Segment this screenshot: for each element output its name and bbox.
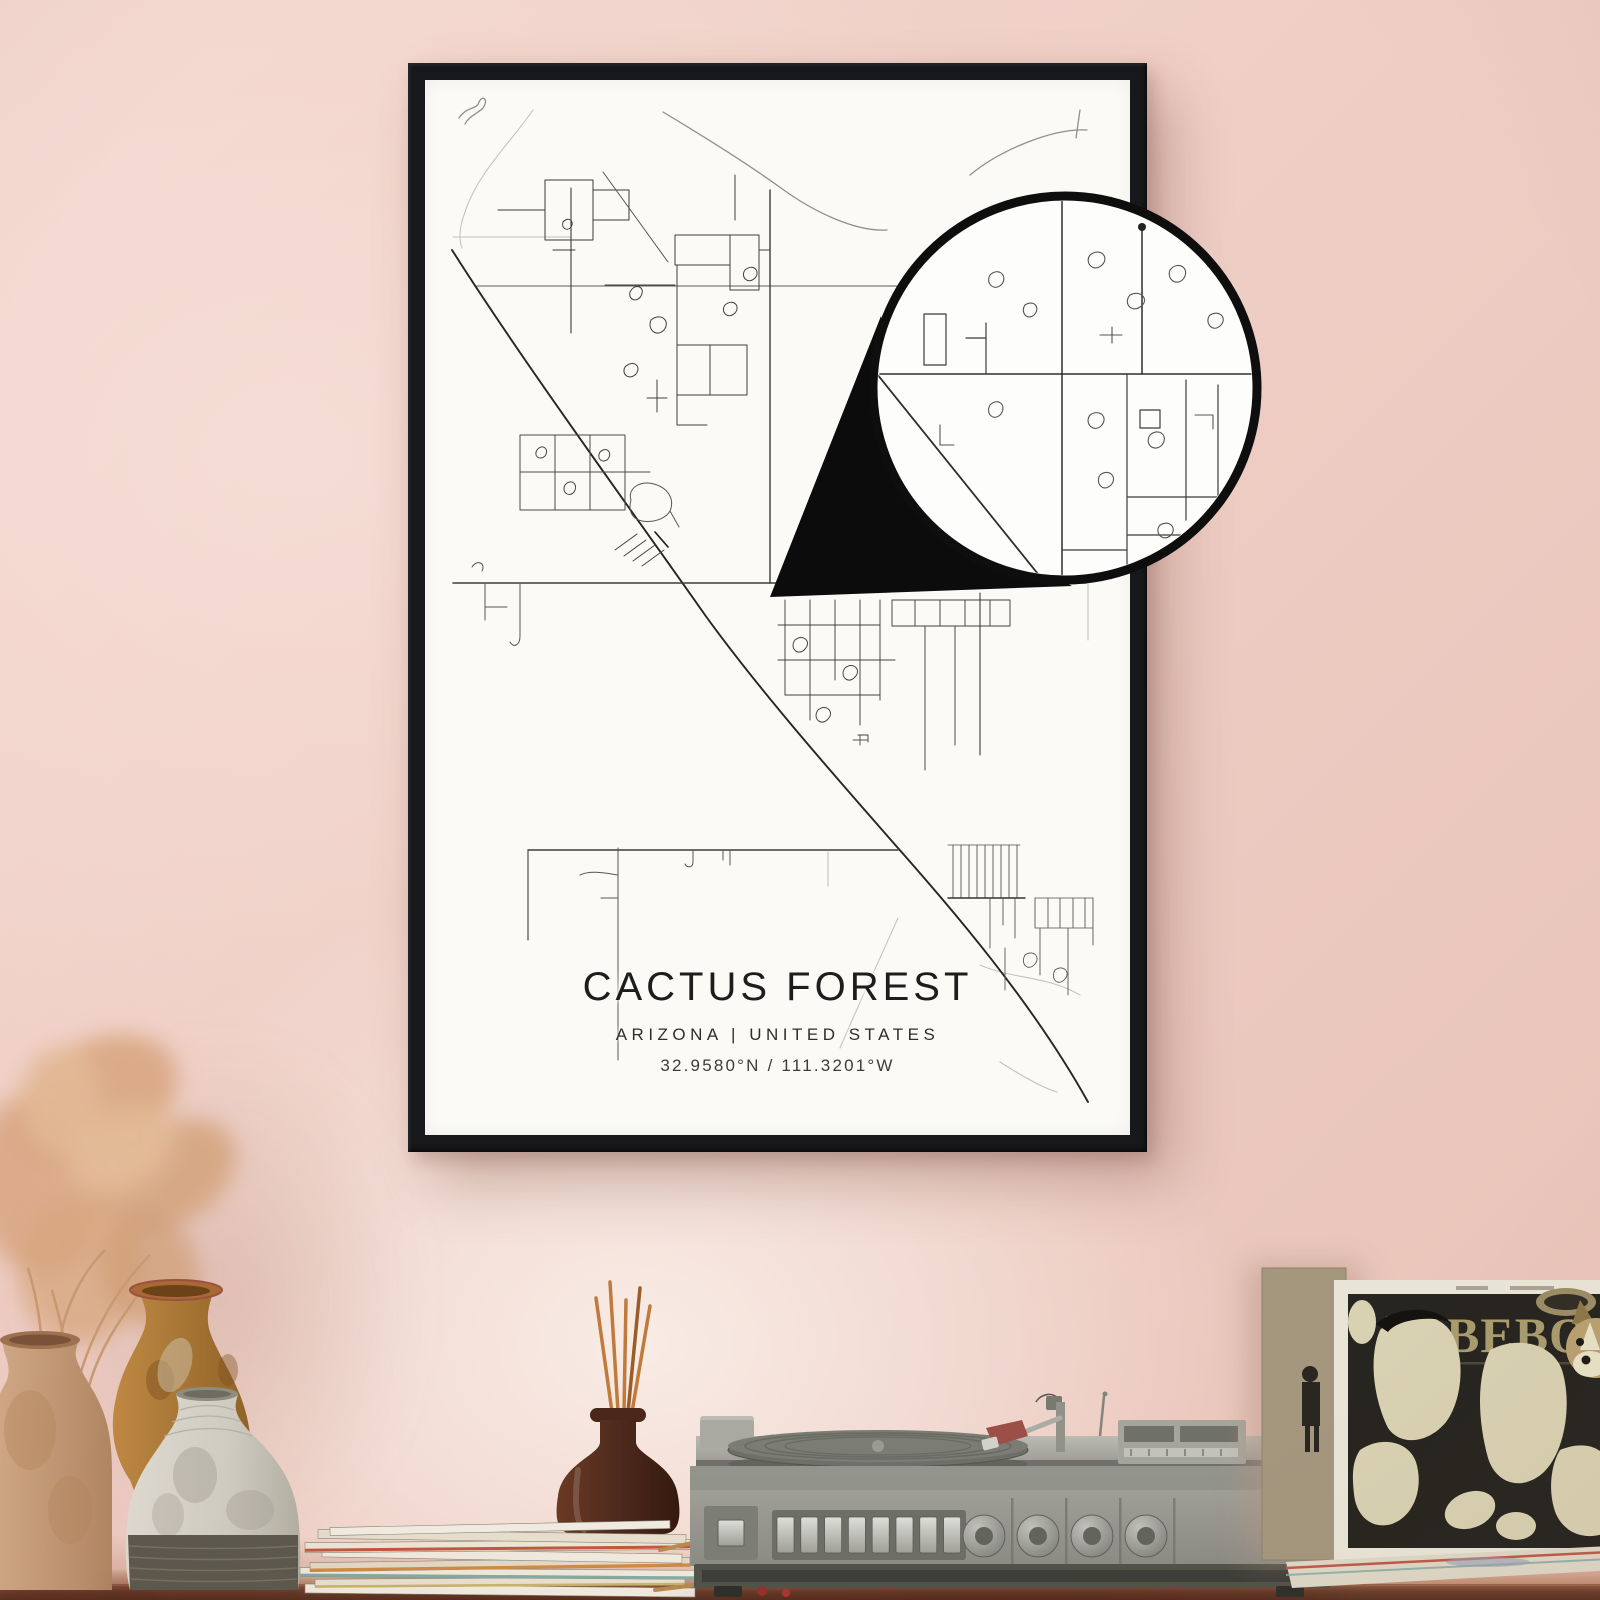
album-cover-bebop: MEET THE BEBOP: [1334, 1280, 1600, 1562]
preset-buttons: [772, 1510, 966, 1560]
incense-sticks: [596, 1282, 650, 1412]
map-cluster-upper-left: [498, 172, 668, 262]
vinyl-label: [1446, 1557, 1530, 1567]
still-life: MEET THE BEBOP: [0, 950, 1600, 1600]
cassette-deck: [1118, 1420, 1246, 1464]
album-back-sleeve: [1262, 1268, 1346, 1560]
magnifier-detail: [740, 175, 1280, 615]
map-cluster-town: [778, 600, 1010, 770]
reed-diffuser: [557, 1282, 680, 1534]
power-button: [704, 1506, 758, 1560]
antenna: [1100, 1396, 1104, 1436]
scene: CACTUS FOREST ARIZONA | UNITED STATES 32…: [0, 0, 1600, 1600]
magnifier-circle: [873, 196, 1257, 580]
record-player: [680, 1392, 1344, 1600]
map-rail-crossing: [615, 532, 668, 566]
turntable-platter: [728, 1430, 1028, 1467]
